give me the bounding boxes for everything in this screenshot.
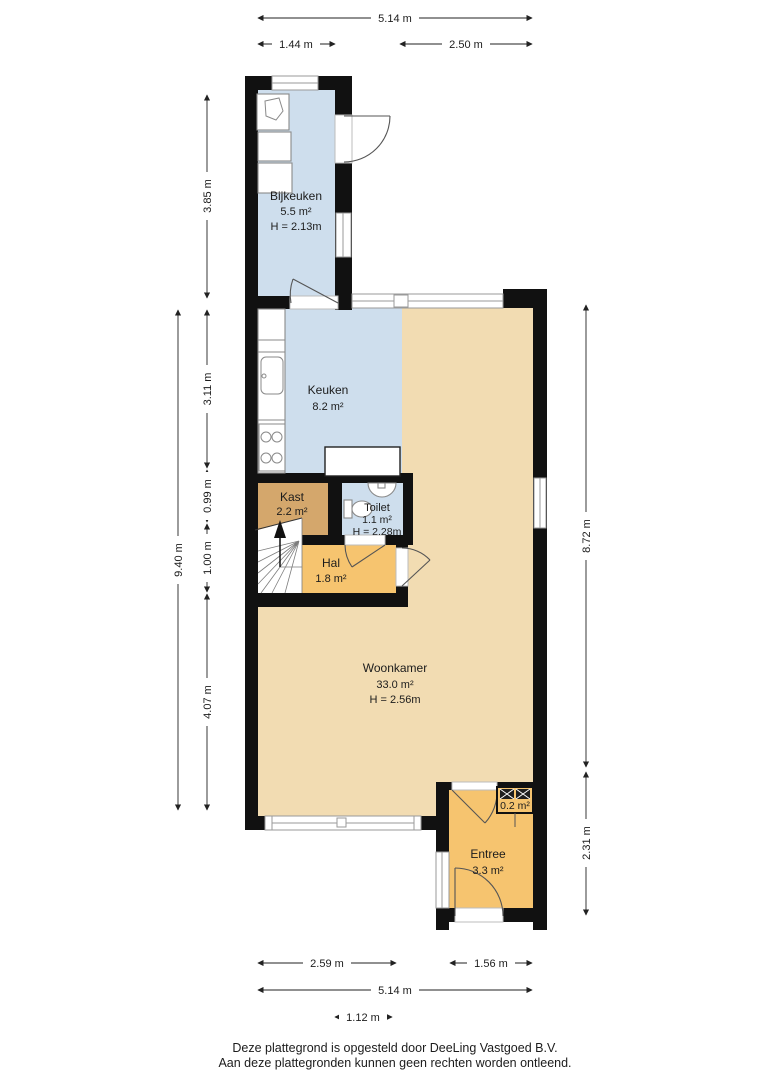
dimension-left-seg5: 4.07 m [199,594,214,810]
svg-text:2.59 m: 2.59 m [310,958,344,970]
svg-text:3.11 m: 3.11 m [202,373,214,406]
footer-line-2: Aan deze plattegronden kunnen geen recht… [218,1056,571,1070]
label-hal-area: 1.8 m² [315,573,347,585]
dimension-top-right: 2.50 m [400,37,532,52]
threshold-hal-woonkamer [396,548,408,586]
window-woonkamer-right [534,478,546,528]
label-kast-area: 2.2 m² [276,506,308,518]
wall-kast-toilet-divider [328,483,342,536]
svg-text:2.31 m: 2.31 m [581,826,593,860]
dimension-bottom-seg1: 2.59 m [258,956,396,971]
threshold-bijkeuken-keuken [290,296,338,309]
footer-line-1: Deze plattegrond is opgesteld door DeeLi… [232,1041,557,1055]
dimension-right-seg1: 8.72 m [578,305,593,767]
svg-text:9.40 m: 9.40 m [173,543,185,577]
svg-text:8.72 m: 8.72 m [581,519,593,553]
dimension-bottom-inner: 1.12 m [335,1010,392,1025]
footer: Deze plattegrond is opgesteld door DeeLi… [218,1041,571,1070]
label-toilet-height: H = 2.28m [353,526,402,538]
label-toilet-area: 1.1 m² [362,514,392,526]
dimension-left-seg4: 1.00 m [199,524,214,592]
label-entree-area: 3.3 m² [472,865,504,877]
floorplan-page: Bijkeuken 5.5 m² H = 2.13m Keuken 8.2 m²… [0,0,764,1080]
dimension-top-total: 5.14 m [258,11,532,26]
wall-left [245,76,258,830]
dimension-left-seg2: 3.11 m [199,310,214,468]
svg-text:3.85 m: 3.85 m [202,179,214,213]
svg-text:5.14 m: 5.14 m [378,985,412,997]
dimension-left-total: 9.40 m [170,310,185,810]
window-bijkeuken-top [272,76,318,90]
wall-right [533,289,547,930]
label-meterkast-area: 0.2 m² [500,800,530,812]
label-woonkamer-name: Woonkamer [363,661,427,675]
window-entree-left [436,852,449,908]
label-woonkamer-area: 33.0 m² [376,679,414,691]
floorplan-canvas: Bijkeuken 5.5 m² H = 2.13m Keuken 8.2 m²… [0,0,764,1080]
svg-text:4.07 m: 4.07 m [202,685,214,719]
svg-text:1.00 m: 1.00 m [202,541,214,575]
dimension-bottom-seg2: 1.56 m [450,956,532,971]
dimension-top-left: 1.44 m [258,37,335,52]
room-hal-fill [302,545,396,593]
kitchen-cabinet-block [325,447,400,476]
threshold-woonkamer-entree [452,782,497,790]
svg-text:1.56 m: 1.56 m [474,958,508,970]
window-woonkamer-top [352,294,503,308]
svg-text:0.99 m: 0.99 m [202,479,214,513]
window-woonkamer-bottom [265,816,421,830]
label-entree-name: Entree [470,847,506,861]
svg-text:5.14 m: 5.14 m [378,13,412,25]
threshold-front-door [455,908,503,922]
bijkeuken-appliances [257,94,292,193]
svg-text:1.12 m: 1.12 m [346,1012,380,1024]
label-hal-name: Hal [322,556,340,570]
wc-tank [344,500,352,518]
label-kast-name: Kast [280,490,305,504]
svg-text:1.44 m: 1.44 m [279,39,313,51]
wall-bijkeuken-right [335,76,352,310]
label-woonkamer-height: H = 2.56m [369,694,420,706]
kitchen-counter [258,309,285,473]
label-bijkeuken-height: H = 2.13m [270,221,321,233]
window-bijkeuken-right [336,213,351,257]
dimension-right-seg2: 2.31 m [578,772,593,915]
svg-text:2.50 m: 2.50 m [449,39,483,51]
label-bijkeuken-area: 5.5 m² [280,206,312,218]
dimension-left-seg3: 0.99 m [199,470,214,522]
wall-toilet-right [403,473,413,545]
washer [258,132,291,161]
dimension-bottom-total: 5.14 m [258,983,532,998]
wall-hal-bottom [245,593,408,607]
label-toilet-name: Toilet [364,502,390,514]
dimension-left-seg1: 3.85 m [199,95,214,298]
label-keuken-area: 8.2 m² [312,401,344,413]
threshold-bijkeuken-exterior [335,115,352,163]
label-bijkeuken-name: Bijkeuken [270,189,322,203]
label-keuken-name: Keuken [308,383,349,397]
